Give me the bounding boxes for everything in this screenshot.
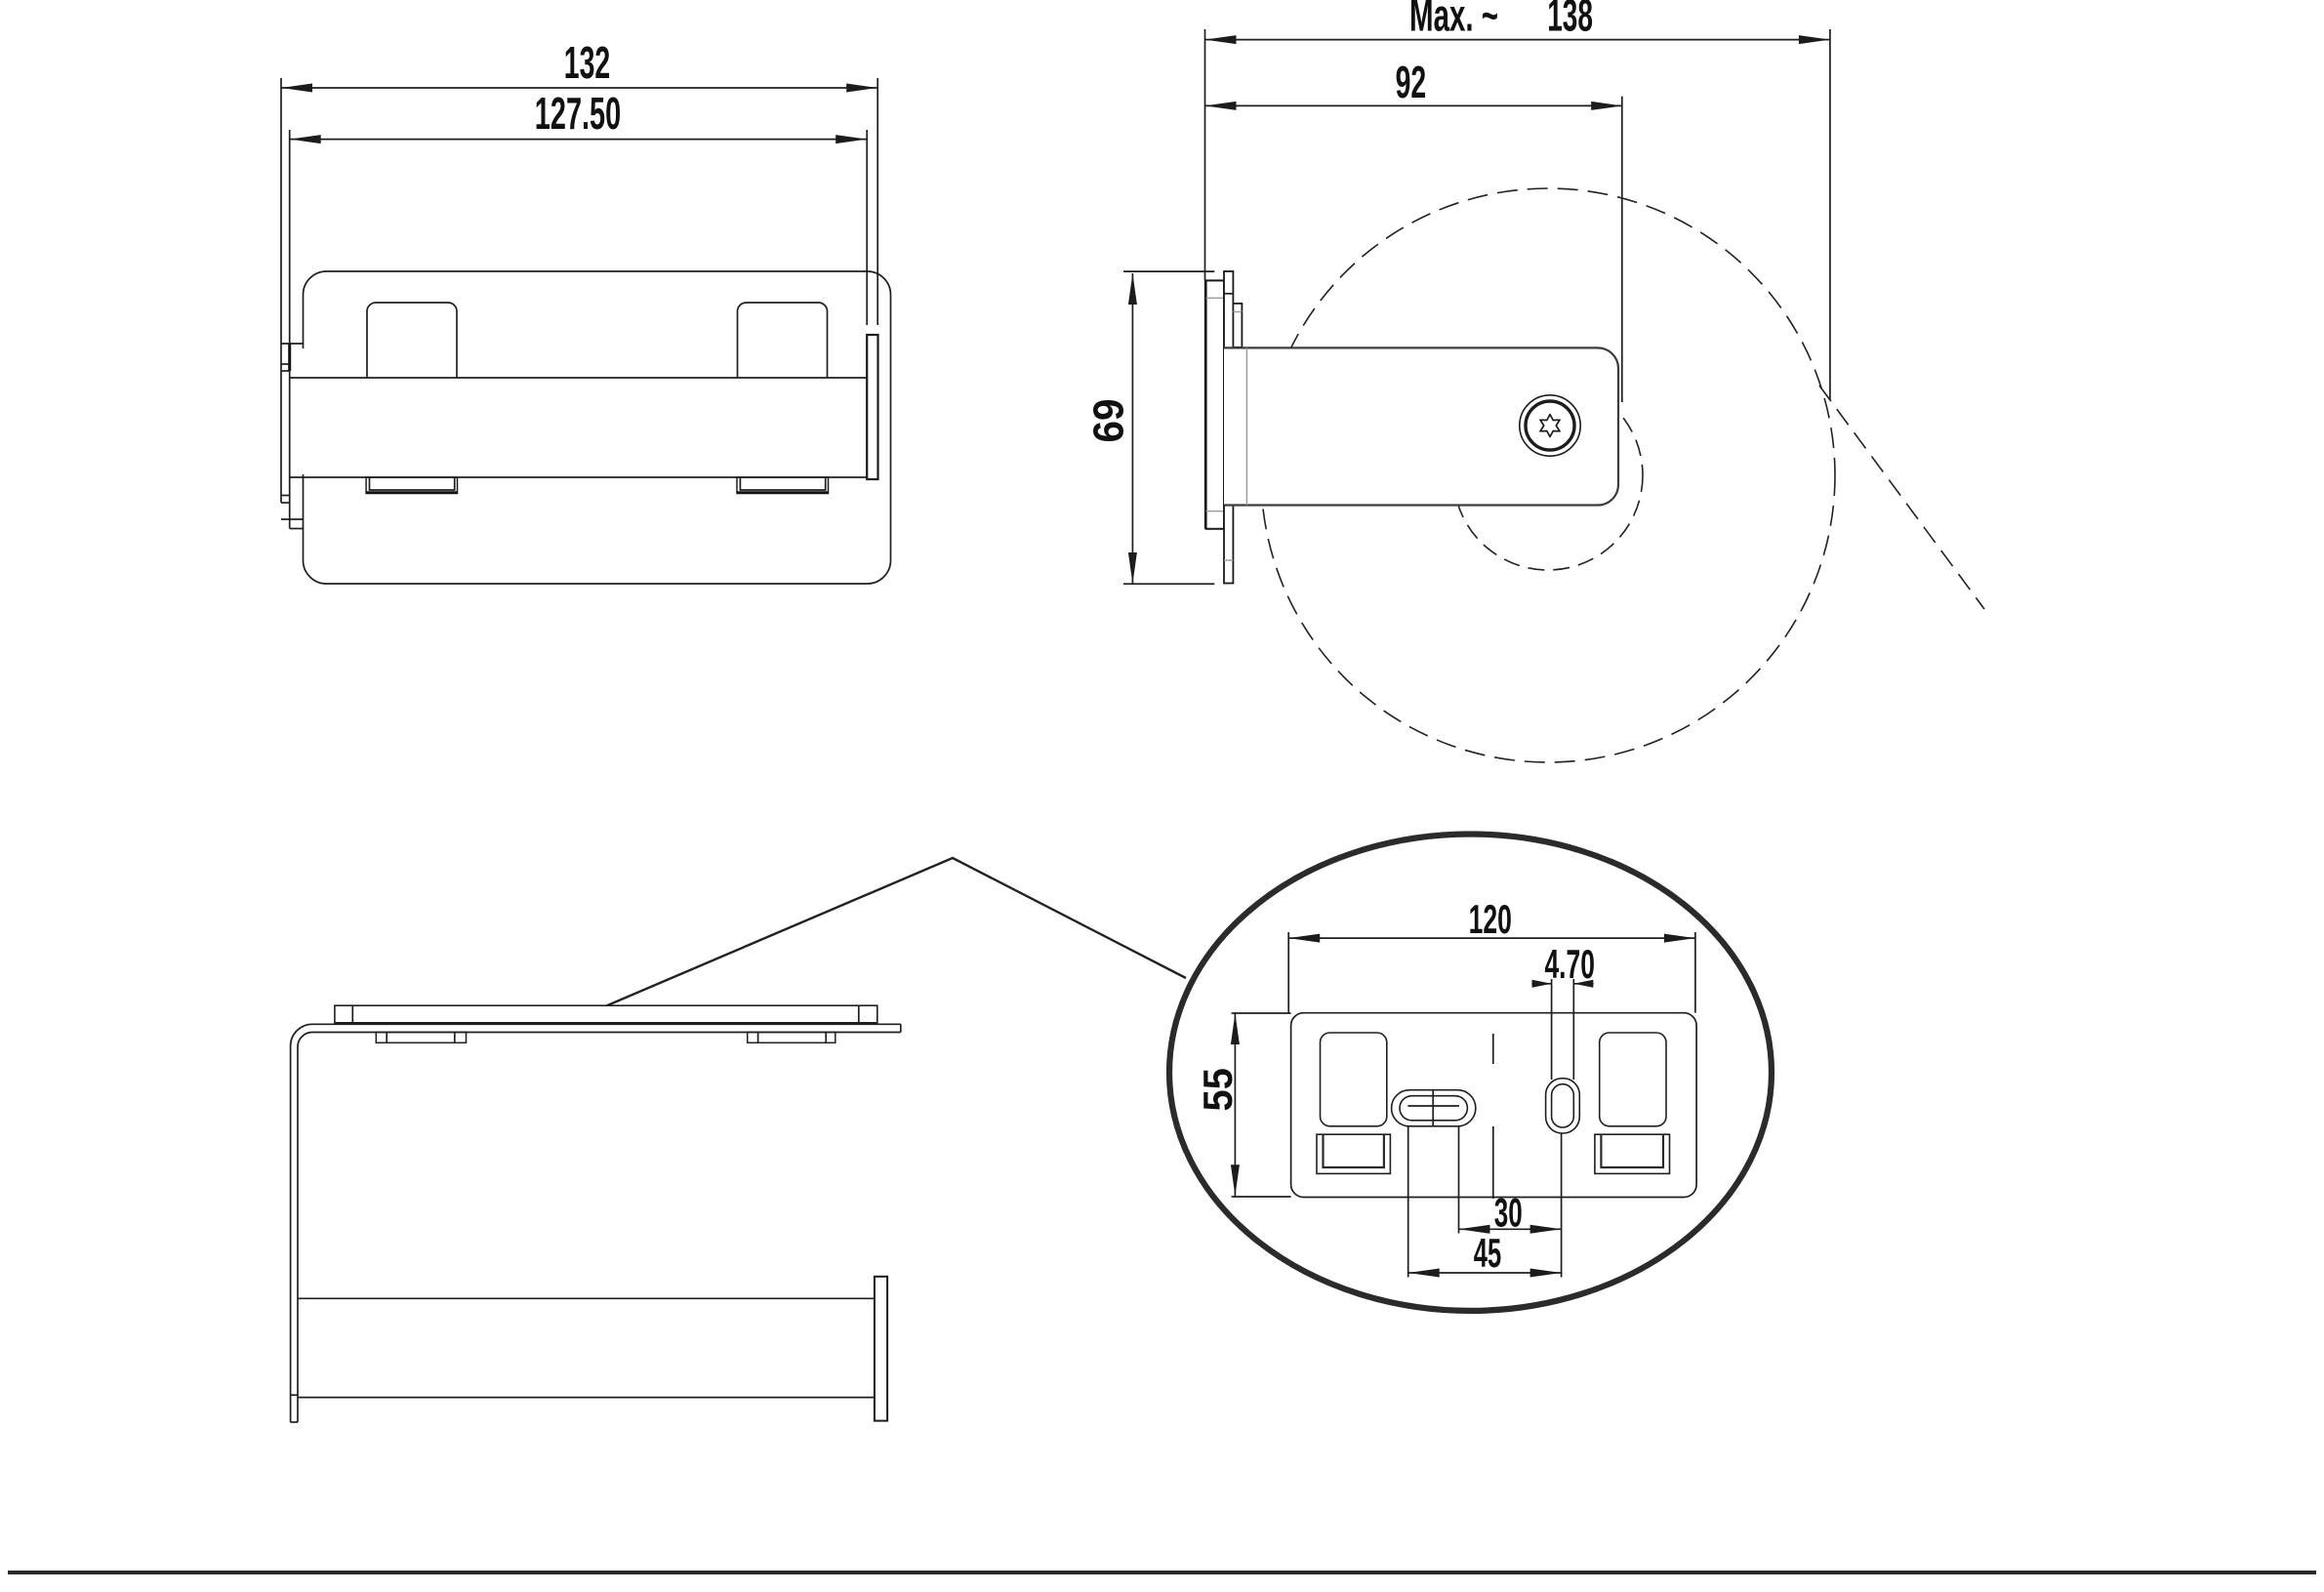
svg-text:138: 138	[1547, 0, 1593, 41]
svg-text:69: 69	[1084, 399, 1132, 443]
svg-text:Max. ~: Max. ~	[1409, 0, 1498, 41]
svg-text:127.50: 127.50	[535, 88, 621, 139]
svg-text:120: 120	[1469, 896, 1512, 942]
svg-text:55: 55	[1195, 1068, 1241, 1111]
svg-text:92: 92	[1396, 57, 1427, 107]
svg-text:30: 30	[1494, 1189, 1523, 1235]
svg-text:132: 132	[564, 37, 611, 88]
svg-text:45: 45	[1474, 1230, 1501, 1276]
